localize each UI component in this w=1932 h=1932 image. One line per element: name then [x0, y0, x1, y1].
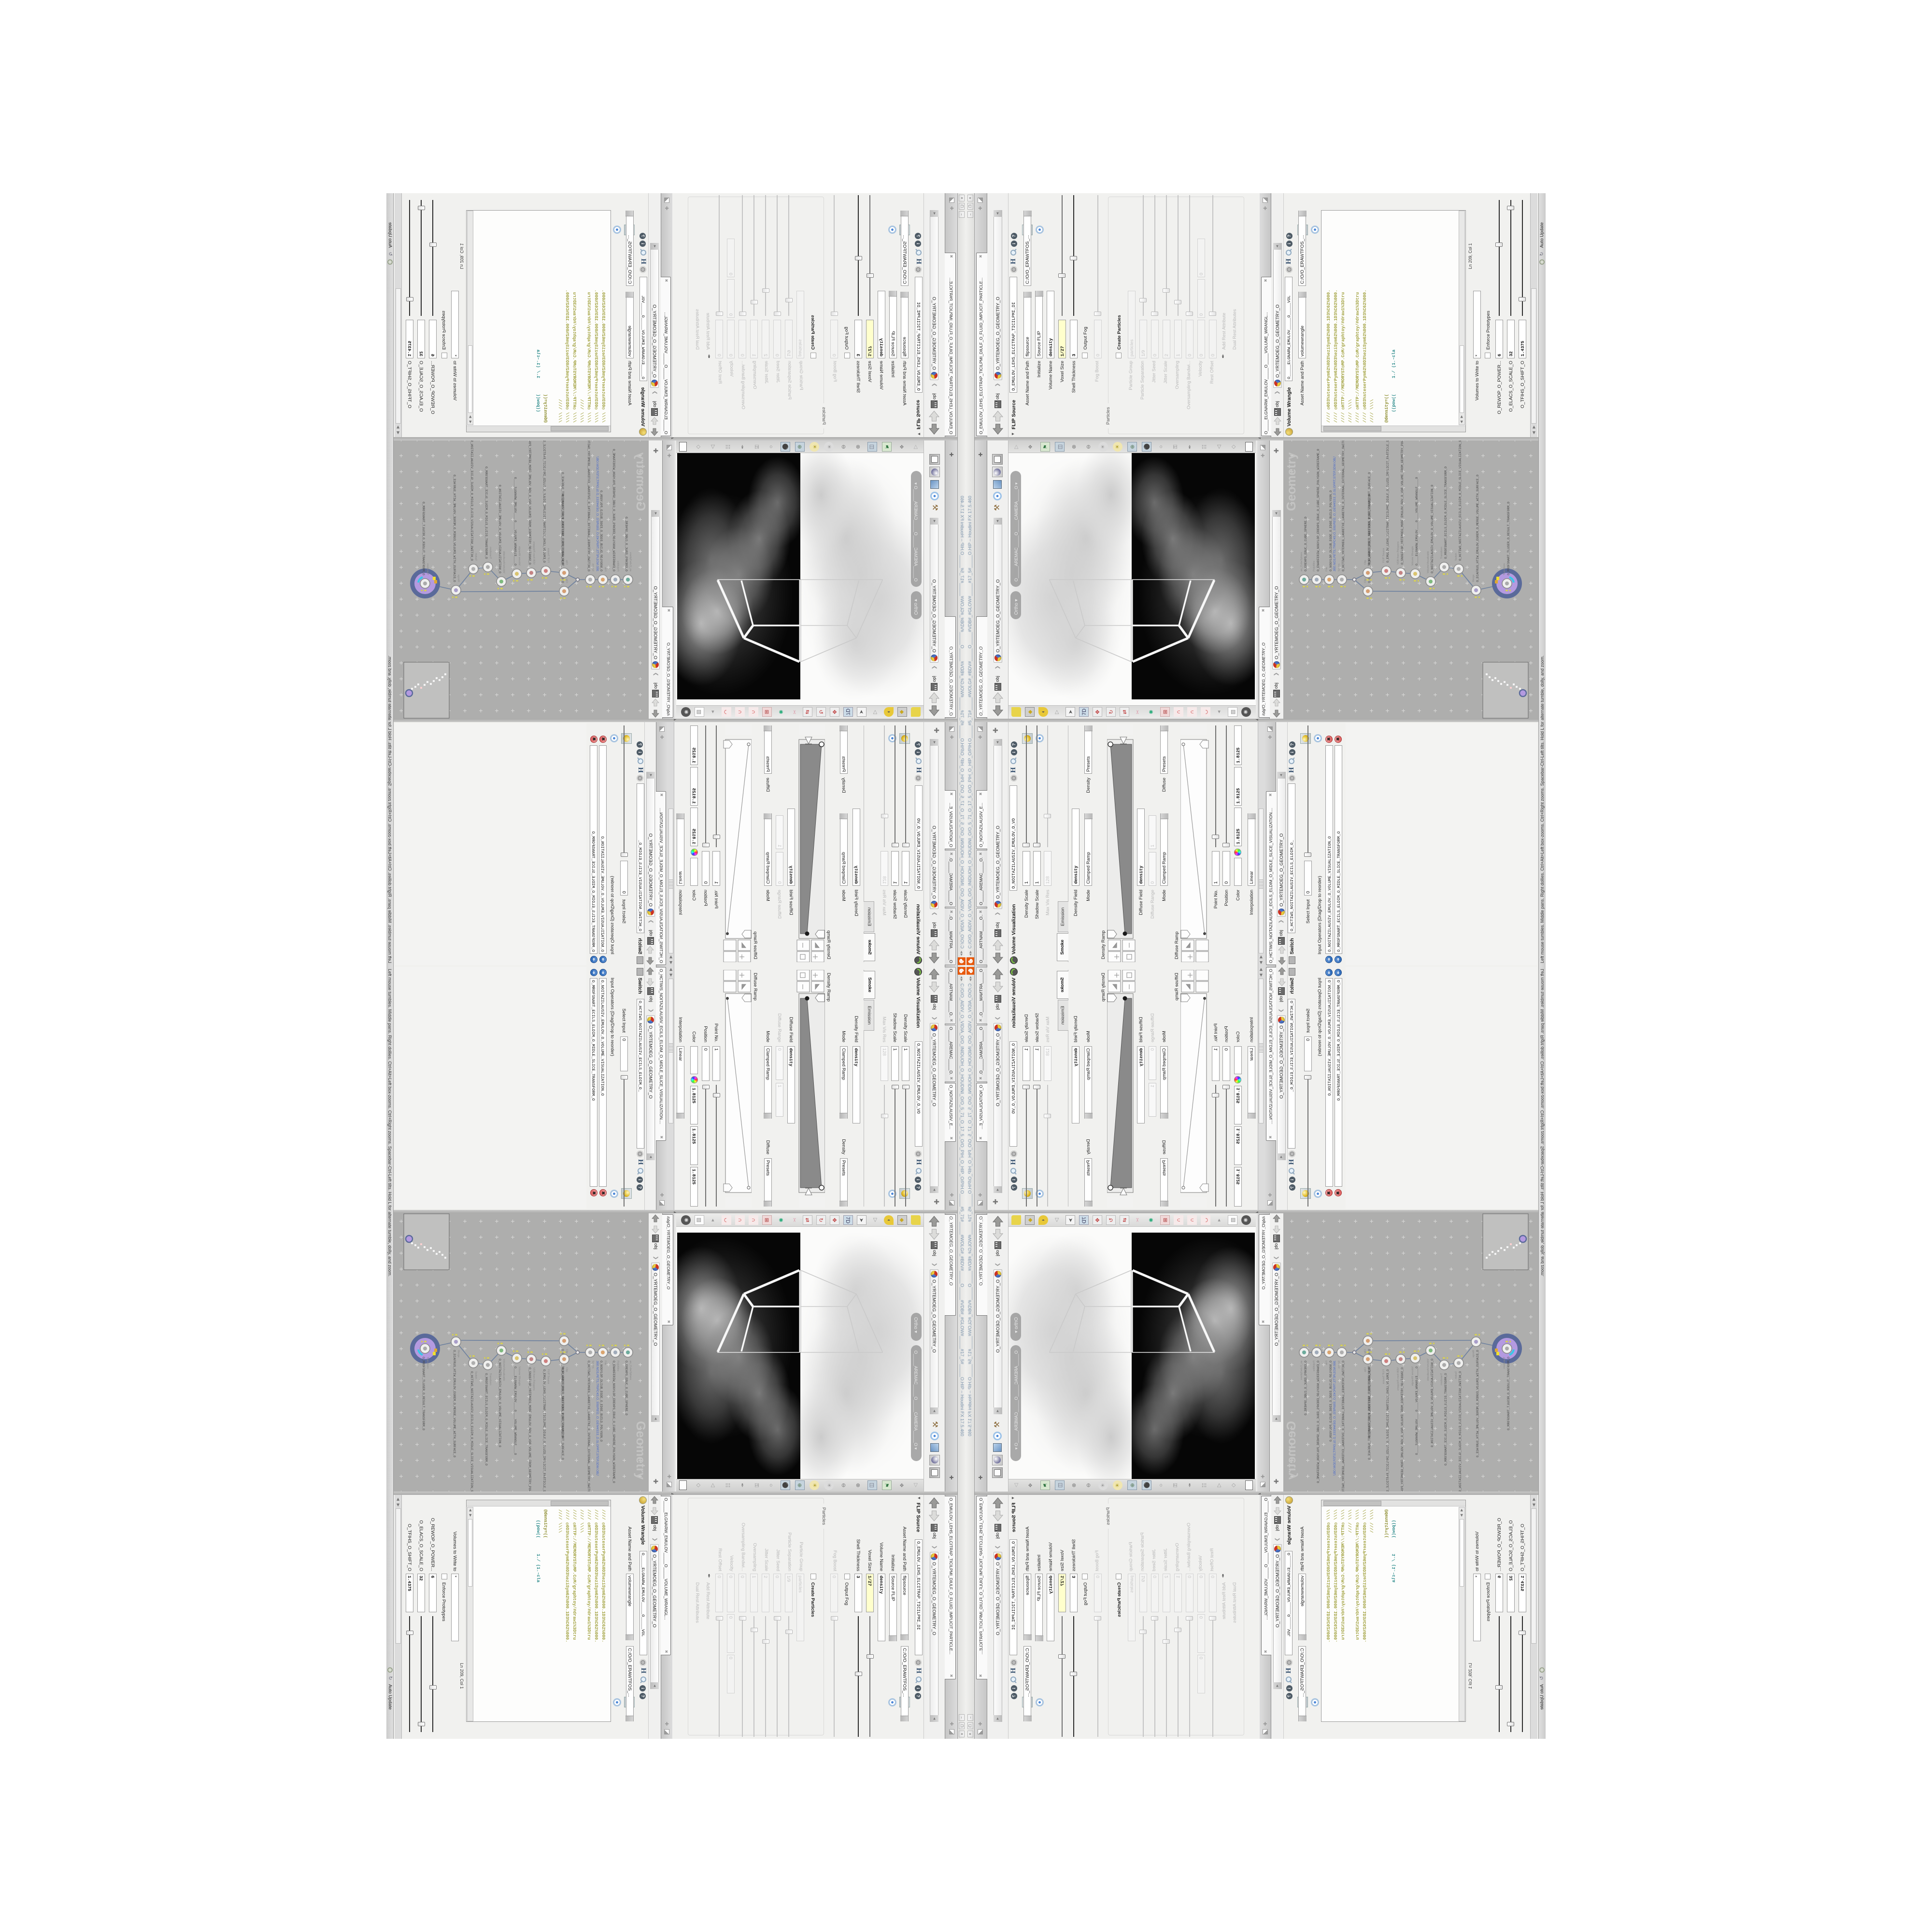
svg-text:Transform: Transform	[489, 547, 492, 559]
svg-text:O_HCTIWS_YRTEMOEG_LANRETXE_LAN: O_HCTIWS_YRTEMOEG_LANRETXE_LANRETNI_O_IN…	[587, 1361, 590, 1492]
svg-text:Transform: Transform	[1440, 547, 1443, 559]
svg-text:Transform: Transform	[1440, 1373, 1443, 1385]
svg-text:O_NOGYLOP_DLIUB_EGDE_O_EDGE_BU: O_NOGYLOP_DLIUB_EGDE_O_EDGE_BUILD_POLYGO…	[599, 1361, 603, 1442]
svg-text:an_CubeSphere: an_CubeSphere	[1300, 1361, 1303, 1380]
svg-text:O_ECAFRUS_HTIW_EMULOV_EGREM_O_: O_ECAFRUS_HTIW_EMULOV_EGREM_O_MERGE_VOLU…	[1476, 475, 1479, 582]
svg-text:O_ECAFRUS_HTIW_EMULOV_EGREM_O_: O_ECAFRUS_HTIW_EMULOV_EGREM_O_MERGE_VOLU…	[453, 475, 456, 582]
svg-text:O_MROFSNART_TLUSER_O_RESULT_TR: O_MROFSNART_TLUSER_O_RESULT_TRANSFORM_O	[1507, 1357, 1510, 1430]
svg-text:Volume Wrangle: Volume Wrangle	[1411, 546, 1414, 566]
svg-text:PolyWire: PolyWire	[616, 1361, 619, 1371]
svg-text:O_HCTIWS_YRTEMOEG_LANRETXE_LAN: O_HCTIWS_YRTEMOEG_LANRETXE_LANRETNI_O_IN…	[587, 440, 590, 571]
svg-text:O_HCTIWS_YRTEMOEG_LANRETXE_LAN: O_HCTIWS_YRTEMOEG_LANRETXE_LANRETNI_O_IN…	[1342, 440, 1345, 571]
svg-text:O_SNOGILOP_YRTEMOEG_MORF_EMULO: O_SNOGILOP_YRTEMOEG_MORF_EMULOV_BDV_O_VD…	[1401, 1367, 1404, 1492]
svg-text:O____ELGNARW_EMULOV____O____VO: O____ELGNARW_EMULOV____O____VOLUME_WRANG…	[513, 477, 517, 566]
svg-text:O_MROFSNART_ECILS_ELDIM_O_MIDL: O_MROFSNART_ECILS_ELDIM_O_MIDLE_SLICE_TR…	[484, 1373, 488, 1465]
svg-text:300.NO3,PETS,TRIPC4S.O_550/REG: 300.NO3,PETS,TRIPC4S.O_550/REG_O_GEM4SS3…	[596, 1361, 599, 1476]
svg-text:Switch: Switch	[591, 1361, 594, 1368]
svg-text:Transform: Transform	[1503, 563, 1506, 575]
svg-text:O_EMULOV_LEHS_ELCITRAP_TICILPM: O_EMULOV_LEHS_ELCITRAP_TICILPMI_DIULF_O_…	[542, 440, 546, 563]
svg-text:Switch: Switch	[474, 1371, 477, 1379]
svg-text:O____ELGNARW_EMULOV____O____VO: O____ELGNARW_EMULOV____O____VOLUME_WRANG…	[1415, 477, 1419, 566]
svg-text:O_SNOGILOP_YRTEMOEG_MORF_EMULO: O_SNOGILOP_YRTEMOEG_MORF_EMULOV_BDV_O_VD…	[528, 440, 531, 565]
svg-text:Geometry: Geometry	[634, 452, 648, 511]
svg-text:Ortho ▾: Ortho ▾	[1014, 1317, 1019, 1333]
svg-text:Transform: Transform	[489, 1373, 492, 1385]
svg-text:VDB from Polygons: VDB from Polygons	[1397, 541, 1400, 565]
svg-text:PolyWire: PolyWire	[616, 561, 619, 571]
svg-text:O_MROFSNART_TLUSER_O_RESULT_TR: O_MROFSNART_TLUSER_O_RESULT_TRANSFORM_O	[422, 1357, 425, 1430]
svg-text:Volume Wrangle: Volume Wrangle	[518, 1366, 521, 1386]
svg-text:O_ECAFRUS_PORT_SNOITCES_O_SECT: O_ECAFRUS_PORT_SNOITCES_O_SECTIONS_PORT_…	[1368, 1367, 1371, 1460]
svg-text:O_NOITAZILAUSIV_EMULOV_O_VOLUM: O_NOITAZILAUSIV_EMULOV_O_VOLUME_VISUALIZ…	[1431, 1359, 1434, 1447]
svg-text:Transform: Transform	[426, 563, 429, 575]
svg-text:Switch: Switch	[474, 553, 477, 561]
svg-text:Clip: Clip	[1364, 1367, 1367, 1372]
svg-text:Merge: Merge	[1472, 574, 1475, 582]
svg-text:O_ECAFRUS_PORT_SNOITCES_O_SECT: O_ECAFRUS_PORT_SNOITCES_O_SECTIONS_PORT_…	[561, 472, 564, 565]
svg-text:Switch: Switch	[1338, 564, 1341, 571]
svg-text:O_NOITAZILAUSIV_EMULOV_O_VOLUM: O_NOITAZILAUSIV_EMULOV_O_VOLUME_VISUALIZ…	[1431, 485, 1434, 573]
svg-text:O_MROFSNART_TLUSER_O_RESULT_TR: O_MROFSNART_TLUSER_O_RESULT_TRANSFORM_O	[1507, 502, 1510, 575]
svg-text:300.NO3,PETS,TRIPC4S.O_550/REG: 300.NO3,PETS,TRIPC4S.O_550/REG_O_GEM4SS3…	[596, 456, 599, 571]
svg-text:Clip: Clip	[565, 560, 568, 565]
svg-text:File: File	[1325, 567, 1328, 571]
svg-text:O_EMULOV_LEHS_ELCITRAP_TICILPM: O_EMULOV_LEHS_ELCITRAP_TICILPMI_DIULF_O_…	[542, 1369, 546, 1492]
svg-text:Geometry: Geometry	[634, 1421, 648, 1480]
svg-text:O_EMULOV_LEHS_ELCITRAP_TICILPM: O_EMULOV_LEHS_ELCITRAP_TICILPMI_DIULF_O_…	[1386, 440, 1390, 563]
svg-text:O_NOGYLOP_DLIUB_EGDE_O_EDGE_BU: O_NOGYLOP_DLIUB_EGDE_O_EDGE_BUILD_POLYGO…	[599, 490, 603, 571]
svg-text:O_MROFSNART_ECILS_ELDIM_O_MIDL: O_MROFSNART_ECILS_ELDIM_O_MIDLE_SLICE_TR…	[1444, 467, 1448, 559]
svg-text:O_MROFSNART_ECILS_ELDIM_O_MIDL: O_MROFSNART_ECILS_ELDIM_O_MIDLE_SLICE_TR…	[484, 467, 488, 559]
svg-text:PolyWire: PolyWire	[1313, 561, 1316, 571]
svg-text:FLIP Source: FLIP Source	[547, 1369, 550, 1384]
svg-text:Merge: Merge	[457, 574, 460, 582]
svg-text:O_SNOGILOP_YRTEMOEG_MORF_EMULO: O_SNOGILOP_YRTEMOEG_MORF_EMULOV_BDV_O_VD…	[1401, 440, 1404, 565]
svg-text:O_ENARFERIW_NOGYLOP_EREHPS_EBU: O_ENARFERIW_NOGYLOP_EREHPS_EBUC_O_CUBE_S…	[1317, 449, 1320, 571]
svg-text:O_NOITAZILAUSIV_EMULOV_O_VOLUM: O_NOITAZILAUSIV_EMULOV_O_VOLUME_VISUALIZ…	[498, 485, 501, 573]
svg-text:O_EREHPS_EBUC_O_CUBE_SPHERE_O: O_EREHPS_EBUC_O_CUBE_SPHERE_O	[1304, 1361, 1307, 1415]
svg-text:Transform: Transform	[1503, 1357, 1506, 1369]
svg-text:O_____AREMAC_____O_____CAMERA_: O_____AREMAC_____O_____CAMERA_____O ▾	[913, 482, 918, 582]
svg-text:O_HCTIWS_YRTEMOEG_LANRETXE_LAN: O_HCTIWS_YRTEMOEG_LANRETXE_LANRETNI_O_IN…	[1342, 1361, 1345, 1492]
svg-text:Clip: Clip	[565, 1367, 568, 1372]
svg-text:O_____AREMAC_____O_____CAMERA_: O_____AREMAC_____O_____CAMERA_____O ▾	[913, 1350, 918, 1450]
svg-text:300.NO3,PETS,TRIPC4S.O_550/REG: 300.NO3,PETS,TRIPC4S.O_550/REG_O_GEM4SS3…	[1333, 456, 1336, 571]
svg-text:O_ECAFRUS_HTIW_EMULOV_EGREM_O_: O_ECAFRUS_HTIW_EMULOV_EGREM_O_MERGE_VOLU…	[1476, 1350, 1479, 1457]
svg-text:File: File	[604, 1361, 607, 1365]
svg-text:Ortho ▾: Ortho ▾	[913, 1317, 918, 1333]
svg-text:O_NOITAZILAUSIV_EMULOV_O_VOLUM: O_NOITAZILAUSIV_EMULOV_O_VOLUME_VISUALIZ…	[498, 1359, 501, 1447]
svg-text:O_EMULOV_LEHS_ELCITRAP_TICILPM: O_EMULOV_LEHS_ELCITRAP_TICILPMI_DIULF_O_…	[1386, 1369, 1390, 1492]
svg-text:O_HCTIWS_NOITAZILAUSIV_ECILS_E: O_HCTIWS_NOITAZILAUSIV_ECILS_ELDIM_O_MID…	[1459, 1371, 1462, 1492]
svg-text:O_ECAFRUS_HTIW_EMULOV_EGREM_O_: O_ECAFRUS_HTIW_EMULOV_EGREM_O_MERGE_VOLU…	[453, 1350, 456, 1457]
svg-text:an_CubeSphere: an_CubeSphere	[629, 1361, 632, 1380]
svg-text:O_ENARFERIW_NOGYLOP_EREHPS_EBU: O_ENARFERIW_NOGYLOP_EREHPS_EBUC_O_CUBE_S…	[1317, 1361, 1320, 1483]
svg-text:O_NOGYLOP_DLIUB_EGDE_O_EDGE_BU: O_NOGYLOP_DLIUB_EGDE_O_EDGE_BUILD_POLYGO…	[1329, 1361, 1333, 1442]
svg-text:Merge: Merge	[1472, 1350, 1475, 1358]
svg-text:O____ELGNARW_EMULOV____O____VO: O____ELGNARW_EMULOV____O____VOLUME_WRANG…	[513, 1366, 517, 1455]
svg-text:O_ECAFRUS_PORT_SNOITCES_O_SECT: O_ECAFRUS_PORT_SNOITCES_O_SECTIONS_PORT_…	[561, 1367, 564, 1460]
svg-text:Geometry: Geometry	[1284, 1421, 1298, 1480]
svg-text:VDB from Polygons: VDB from Polygons	[1397, 1367, 1400, 1391]
svg-text:O_ENARFERIW_NOGYLOP_EREHPS_EBU: O_ENARFERIW_NOGYLOP_EREHPS_EBUC_O_CUBE_S…	[612, 1361, 615, 1483]
svg-text:an_CubeSphere: an_CubeSphere	[1300, 552, 1303, 571]
svg-text:300.NO3,PETS,TRIPC4S.O_550/REG: 300.NO3,PETS,TRIPC4S.O_550/REG_O_GEM4SS3…	[1333, 1361, 1336, 1476]
svg-text:Volume Wrangle: Volume Wrangle	[1411, 1366, 1414, 1386]
svg-text:Merge: Merge	[457, 1350, 460, 1358]
svg-text:O_EREHPS_EBUC_O_CUBE_SPHERE_O: O_EREHPS_EBUC_O_CUBE_SPHERE_O	[625, 517, 628, 571]
svg-text:O_SNOGILOP_YRTEMOEG_MORF_EMULO: O_SNOGILOP_YRTEMOEG_MORF_EMULOV_BDV_O_VD…	[528, 1367, 531, 1492]
svg-text:VolumeVisualizatio: VolumeVisualizatio	[1427, 551, 1430, 573]
svg-text:Switch: Switch	[1455, 1371, 1458, 1379]
svg-text:an_CubeSphere: an_CubeSphere	[629, 552, 632, 571]
svg-text:FLIP Source: FLIP Source	[1382, 1369, 1385, 1384]
svg-text:O____ELGNARW_EMULOV____O____VO: O____ELGNARW_EMULOV____O____VOLUME_WRANG…	[1415, 1366, 1419, 1455]
svg-text:O_NOGYLOP_DLIUB_EGDE_O_EDGE_BU: O_NOGYLOP_DLIUB_EGDE_O_EDGE_BUILD_POLYGO…	[1329, 490, 1333, 571]
svg-text:Clip: Clip	[1364, 560, 1367, 565]
svg-text:VolumeVisualizatio: VolumeVisualizatio	[502, 1359, 505, 1381]
svg-text:PolyWire: PolyWire	[1313, 1361, 1316, 1371]
svg-text:O_ECAFRUS_PORT_SNOITCES_O_SECT: O_ECAFRUS_PORT_SNOITCES_O_SECTIONS_PORT_…	[1368, 472, 1371, 565]
svg-text:O_HCTIWS_NOITAZILAUSIV_ECILS_E: O_HCTIWS_NOITAZILAUSIV_ECILS_ELDIM_O_MID…	[470, 440, 473, 561]
svg-text:Transform: Transform	[426, 1357, 429, 1369]
svg-text:O_____AREMAC_____O_____CAMERA_: O_____AREMAC_____O_____CAMERA_____O ▾	[1014, 482, 1019, 582]
svg-text:O_EREHPS_EBUC_O_CUBE_SPHERE_O: O_EREHPS_EBUC_O_CUBE_SPHERE_O	[1304, 517, 1307, 571]
svg-text:Switch: Switch	[1455, 553, 1458, 561]
svg-text:Geometry: Geometry	[1284, 452, 1298, 511]
svg-text:VolumeVisualizatio: VolumeVisualizatio	[1427, 1359, 1430, 1381]
svg-text:Switch: Switch	[1338, 1361, 1341, 1368]
svg-text:O_EREHPS_EBUC_O_CUBE_SPHERE_O: O_EREHPS_EBUC_O_CUBE_SPHERE_O	[625, 1361, 628, 1415]
svg-text:O_HCTIWS_NOITAZILAUSIV_ECILS_E: O_HCTIWS_NOITAZILAUSIV_ECILS_ELDIM_O_MID…	[1459, 440, 1462, 561]
svg-text:Ortho ▾: Ortho ▾	[913, 599, 918, 615]
svg-text:Switch: Switch	[591, 564, 594, 571]
svg-text:O_HCTIWS_NOITAZILAUSIV_ECILS_E: O_HCTIWS_NOITAZILAUSIV_ECILS_ELDIM_O_MID…	[470, 1371, 473, 1492]
svg-text:FLIP Source: FLIP Source	[547, 548, 550, 563]
svg-text:File: File	[604, 567, 607, 571]
svg-text:Volume Wrangle: Volume Wrangle	[518, 546, 521, 566]
svg-text:Ortho ▾: Ortho ▾	[1014, 599, 1019, 615]
svg-text:File: File	[1325, 1361, 1328, 1365]
svg-text:FLIP Source: FLIP Source	[1382, 548, 1385, 563]
svg-text:VDB from Polygons: VDB from Polygons	[532, 1367, 535, 1391]
svg-text:O_MROFSNART_ECILS_ELDIM_O_MIDL: O_MROFSNART_ECILS_ELDIM_O_MIDLE_SLICE_TR…	[1444, 1373, 1448, 1465]
svg-text:VDB from Polygons: VDB from Polygons	[532, 541, 535, 565]
svg-text:O_MROFSNART_TLUSER_O_RESULT_TR: O_MROFSNART_TLUSER_O_RESULT_TRANSFORM_O	[422, 502, 425, 575]
svg-text:O_____AREMAC_____O_____CAMERA_: O_____AREMAC_____O_____CAMERA_____O ▾	[1014, 1350, 1019, 1450]
svg-text:O_ENARFERIW_NOGYLOP_EREHPS_EBU: O_ENARFERIW_NOGYLOP_EREHPS_EBUC_O_CUBE_S…	[612, 449, 615, 571]
svg-text:VolumeVisualizatio: VolumeVisualizatio	[502, 551, 505, 573]
